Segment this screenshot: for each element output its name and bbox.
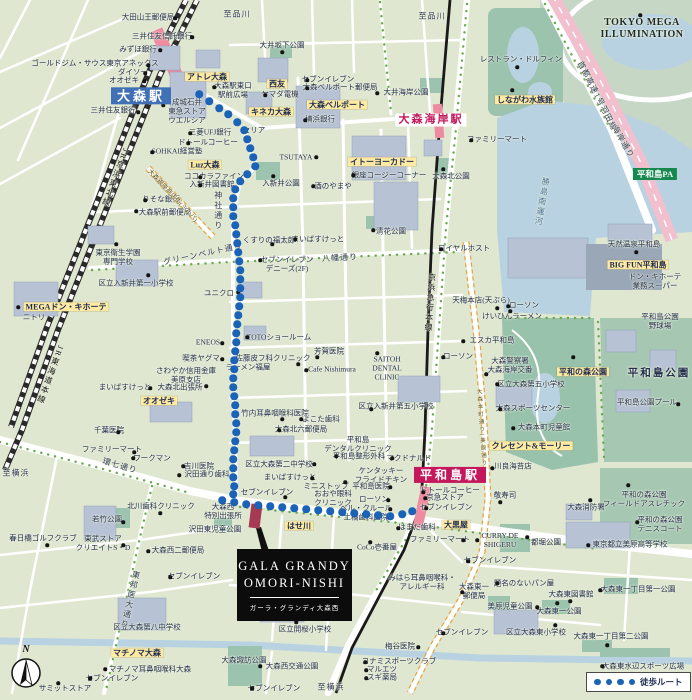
map-label: 区立大森東小学校 — [506, 629, 566, 638]
walking-route-dot — [249, 153, 257, 161]
poi-dot — [441, 631, 445, 635]
walking-route-dot — [240, 126, 248, 134]
map-label: 平和の森公園 フィールドアスレチック — [603, 491, 685, 509]
map-label: はまだ歯科 — [398, 524, 436, 533]
poi-dot — [423, 496, 427, 500]
poi-dot — [131, 456, 135, 460]
poi-dot — [351, 173, 355, 177]
map-label: 東京都立美原高等学校 — [593, 541, 668, 550]
map-label: 大森スポーツセンター — [496, 405, 571, 414]
map-label: 三井住友信託銀行 — [132, 33, 192, 42]
walking-route-dot — [236, 293, 244, 301]
poi-dot — [198, 175, 202, 179]
walking-route-dot — [229, 490, 237, 498]
map-label: 大森東水辺スポーツ広場 — [602, 663, 684, 672]
walking-route-dot — [215, 104, 223, 112]
walking-route-dot — [236, 266, 244, 274]
map-label: クレセント&モーリー — [490, 441, 573, 450]
map-label: まいばすけっと — [99, 384, 152, 393]
walking-route-dot — [229, 473, 237, 481]
poi-dot — [132, 450, 136, 454]
poi-dot — [299, 417, 303, 421]
map-label: セブンイレブン — [248, 685, 301, 694]
poi-dot — [553, 623, 557, 627]
map-label: しながわ水族館 — [495, 95, 555, 104]
map-label: 至品川 — [419, 11, 446, 20]
poi-dot — [368, 540, 372, 544]
poi-dot — [103, 667, 107, 671]
walking-route-dot — [278, 503, 286, 511]
map-label: 平和島公園 — [628, 368, 691, 380]
poi-dot — [16, 305, 20, 309]
map-label: ヤマダ電機 — [261, 91, 299, 100]
poi-dot — [271, 174, 275, 178]
walking-route-dot — [229, 383, 237, 391]
map-label: エスカ平和島 — [470, 337, 515, 346]
map-label: CURRY DE SHIGERU — [481, 532, 518, 550]
poi-dot — [495, 382, 499, 386]
poi-dot — [571, 355, 575, 359]
map-label: まいばすけっと — [292, 236, 345, 245]
walking-route-dot — [251, 162, 259, 170]
area-map: 至品川至品川大田山王郵便局三井住友信託銀行みずほ銀行ゴールドジム・サウス東京アネ… — [0, 0, 692, 700]
walking-route-dot — [230, 498, 238, 506]
map-label: 区立大森第二中学校 — [245, 461, 313, 470]
map-label: セブンイレブン — [464, 557, 517, 566]
poi-dot — [263, 93, 267, 97]
map-label: 大井海岸公園 — [384, 89, 429, 98]
map-label: 春日橋ゴルフクラブ — [9, 535, 77, 544]
walking-route-dot — [205, 97, 213, 105]
map-label: ニトリ — [23, 314, 46, 323]
map-label: 大森ベルポート郵便局 — [303, 84, 378, 93]
poi-dot — [396, 526, 400, 530]
map-label: 大森東一丁目第一公園 — [601, 586, 676, 595]
map-label: マチノマ大森 — [111, 648, 163, 657]
poi-dot — [314, 155, 318, 159]
poi-dot — [460, 590, 464, 594]
poi-dot — [511, 426, 515, 430]
poi-dot — [204, 384, 208, 388]
walking-route-dot — [229, 194, 237, 202]
property-name-en-2: OMORI-NISHI — [237, 575, 352, 592]
map-label: けいひんラーメン — [482, 313, 542, 322]
poi-dot — [334, 454, 338, 458]
map-label: レストラン・ドルフィン — [480, 56, 562, 65]
map-label: 至横浜 — [318, 682, 345, 691]
poi-dot — [143, 71, 147, 75]
walking-route-dot — [231, 410, 239, 418]
walking-route-dot — [231, 437, 239, 445]
walking-route-dot — [229, 455, 237, 463]
poi-dot — [134, 209, 138, 213]
poi-dot — [364, 676, 368, 680]
map-label: 大森消防署 — [567, 504, 605, 513]
poi-dot — [304, 368, 308, 372]
poi-dot — [258, 258, 262, 262]
map-label: 天然温泉平和島 — [608, 241, 661, 250]
walking-route-dot — [232, 338, 240, 346]
route-dot-icon — [606, 679, 613, 686]
poi-dot — [484, 372, 488, 376]
map-label: 区立開桜小学校 — [279, 626, 332, 635]
map-label: 若竹公園 — [92, 516, 122, 525]
walking-route-dot — [195, 90, 203, 98]
route-dot-icon — [617, 679, 624, 686]
poi-dot — [293, 237, 297, 241]
poi-dot — [475, 538, 479, 542]
walking-route-dot — [236, 275, 244, 283]
poi-dot — [600, 664, 604, 668]
map-label: 大井坂下公園 — [260, 42, 305, 51]
map-label: 都堀公園 — [531, 539, 561, 548]
walking-route-dot — [326, 507, 334, 515]
poi-dot — [605, 643, 609, 647]
poi-dot — [283, 495, 287, 499]
map-label: よこた歯科 — [302, 416, 340, 425]
poi-dot — [369, 407, 373, 411]
map-label: 区立入新井第一小学校 — [99, 280, 174, 289]
poi-dot — [312, 462, 316, 466]
poi-dot — [280, 50, 284, 54]
poi-dot — [220, 357, 224, 361]
walking-route-dot — [254, 501, 262, 509]
poi-dot — [315, 355, 319, 359]
map-label: 喫茶ヤグマ — [182, 355, 220, 364]
map-label: 入新井図書館 — [190, 181, 235, 190]
map-label: 天梅本店(天ぷら) — [452, 297, 510, 306]
map-label: 大黒屋 — [442, 520, 470, 529]
map-label: 成城石井 東急ストア ウエルシア — [168, 99, 206, 126]
poi-dot — [310, 476, 314, 480]
poi-dot — [498, 500, 502, 504]
map-label: ドン・キホーテ 業務スーパー — [629, 273, 682, 291]
map-label: スギ薬局 — [367, 674, 397, 683]
map-label: キネカ大森 — [249, 107, 293, 116]
poi-dot — [45, 543, 49, 547]
map-label: 川良海苔店 — [494, 463, 532, 472]
map-label: みずほ銀行 — [119, 46, 157, 55]
poi-dot — [466, 559, 470, 563]
compass-needle-icon — [6, 655, 46, 691]
walking-route-dot — [229, 212, 237, 220]
poi-dot — [142, 79, 146, 83]
poi-dot — [388, 507, 392, 511]
poi-dot — [296, 362, 300, 366]
walking-route-dot — [231, 185, 239, 193]
map-label: 大森駅東口 駅前広場 — [214, 82, 252, 100]
map-label: ENEOS — [196, 339, 220, 348]
map-label: 平和島公園プール — [617, 399, 677, 408]
map-label: 入新井公園 — [262, 180, 300, 189]
route-legend: 徒歩ルート — [586, 672, 691, 692]
map-label: TOKYO MEGA ILLUMINATION — [600, 17, 683, 41]
map-label: 東京衛生学園 専門学校 — [96, 249, 141, 267]
walking-route-dot — [243, 170, 251, 178]
walking-route-dot — [234, 311, 242, 319]
walking-route-dot — [230, 392, 238, 400]
poi-dot — [173, 16, 177, 20]
poi-dot — [424, 506, 428, 510]
map-label: 大森西 特別出張所 — [204, 503, 242, 521]
map-label: 三井住友銀行 — [91, 107, 136, 116]
poi-dot — [277, 428, 281, 432]
map-label: ローソン — [509, 302, 539, 311]
poi-dot — [469, 138, 473, 142]
poi-dot — [439, 247, 443, 251]
map-label: 銀座コージーコーナー — [352, 172, 427, 181]
walking-route-dot — [231, 347, 239, 355]
poi-dot — [116, 430, 120, 434]
walking-route-dot — [266, 502, 274, 510]
walking-route-dot — [229, 374, 237, 382]
poi-dot — [638, 13, 642, 17]
map-label: 大森北出張所 — [158, 384, 203, 393]
walking-route-dot — [232, 230, 240, 238]
walking-route-dot — [314, 506, 322, 514]
poi-dot — [121, 520, 125, 524]
map-label: 横浜銀行 — [305, 116, 335, 125]
walking-route-dot — [235, 257, 243, 265]
walking-route-dot — [236, 284, 244, 292]
omorikaigan-station-label: 大森海岸駅 — [396, 114, 467, 127]
poi-dot — [186, 141, 190, 145]
poi-dot — [270, 242, 274, 246]
walking-route-dot — [386, 512, 394, 520]
map-label: みはら耳鼻咽喉科・ アレルギー科 — [388, 574, 456, 592]
map-label: 美原児童公園 — [488, 603, 533, 612]
walking-route-dot — [232, 329, 240, 337]
map-label: 大田山王郵便局 — [122, 14, 175, 23]
map-label: 至品川 — [224, 9, 251, 18]
map-label: 平和の森公園 — [557, 367, 609, 376]
map-label: ユニクロ — [204, 290, 234, 299]
poi-dot — [490, 466, 494, 470]
walking-route-dot — [230, 446, 238, 454]
poi-dot — [158, 48, 162, 52]
poi-dot — [525, 535, 529, 539]
walking-route-dot — [229, 203, 237, 211]
walking-route-dot — [234, 248, 242, 256]
map-label: 平和島整形外科 — [333, 453, 386, 462]
walking-route-dot — [290, 504, 298, 512]
map-label: 大森西交通公園 — [266, 663, 319, 672]
poi-dot — [56, 681, 60, 685]
poi-dot — [305, 86, 309, 90]
poi-dot — [146, 63, 150, 67]
walking-route-dot — [233, 118, 241, 126]
map-label: 敬寿司 — [494, 492, 517, 501]
poi-dot — [416, 645, 420, 649]
poi-dot — [311, 184, 315, 188]
poi-dot — [371, 228, 375, 232]
poi-dot — [258, 664, 262, 668]
map-label: 大森東図書館 — [549, 591, 594, 600]
map-label: 清花公園 — [376, 228, 406, 237]
poi-dot — [598, 588, 602, 592]
walking-route-dot — [232, 419, 240, 427]
walking-route-dot — [302, 505, 310, 513]
map-label: CoCo壱番屋 — [357, 544, 397, 553]
map-label: 平和の森公園 テニスコート — [638, 516, 683, 534]
map-label: 題名のないパン屋 — [494, 580, 554, 589]
poi-dot — [506, 304, 510, 308]
walking-route-dot — [338, 508, 346, 516]
property-name-en-1: GALA GRANDY — [237, 558, 352, 575]
poi-dot — [375, 351, 379, 355]
poi-dot — [190, 35, 194, 39]
map-label: 沢田東児童公園 — [189, 526, 242, 535]
map-label: 大森ベルポート — [307, 100, 367, 109]
map-label: 平和島医院 — [352, 483, 390, 492]
route-legend-label: 徒歩ルート — [640, 676, 683, 688]
poi-dot — [143, 198, 147, 202]
map-label: Cafe Nishimura — [308, 366, 356, 375]
poi-dot — [177, 473, 181, 477]
poi-dot — [568, 599, 572, 603]
property-name-box: GALA GRANDY OMORI-NISHI ガーラ・グランディ大森西 — [237, 549, 352, 621]
poi-dot — [390, 456, 394, 460]
map-label: イトーヨーカドー — [348, 157, 416, 166]
poi-dot — [441, 355, 445, 359]
map-label: 区立大森第五小学校 — [497, 381, 565, 390]
map-label: BIG FUN平和島 — [607, 260, 668, 269]
map-label: SAITOH DENTAL CLINIC — [372, 356, 401, 383]
poi-dot — [676, 402, 680, 406]
map-label: セブンイレブン デニーズ(2F) — [261, 256, 314, 274]
omori-station-label: 大森駅 — [111, 87, 171, 104]
divider — [250, 597, 340, 598]
map-label: オオゼキ — [141, 396, 177, 405]
poi-dot — [535, 605, 539, 609]
poi-dot — [461, 538, 465, 542]
poi-dot — [146, 273, 150, 277]
poi-dot — [220, 341, 224, 345]
walking-route-dot — [350, 509, 358, 517]
map-label: 大森警察署 大森海岸交番 — [488, 357, 533, 375]
map-label: TOTOショールーム — [247, 334, 312, 343]
poi-dot — [364, 668, 368, 672]
heiwajima-station-label: 平和島駅 — [414, 467, 486, 483]
map-label: サミットストア — [39, 685, 92, 694]
map-label: MEGAドン・キホーテ — [24, 302, 109, 311]
map-label: 至横浜 — [3, 468, 30, 477]
poi-dot — [121, 543, 125, 547]
map-label: セブンイレブン — [86, 675, 139, 684]
walking-route-dot — [231, 221, 239, 229]
map-label: 沢田通り歯科 — [185, 471, 230, 480]
poi-dot — [495, 306, 499, 310]
poi-dot — [461, 339, 465, 343]
poi-dot — [586, 543, 590, 547]
walking-route-dot — [230, 482, 238, 490]
poi-dot — [421, 490, 425, 494]
map-label: オオゼキ — [109, 77, 139, 86]
route-dot-icon — [629, 679, 636, 686]
poi-dot — [508, 309, 512, 313]
map-label: 神社通り — [213, 191, 222, 231]
map-label: SOHKAI経営塾 — [152, 148, 203, 157]
map-label: セブンイレブン — [168, 573, 221, 582]
map-label: 大森東一丁目第二公園 — [574, 633, 649, 642]
poi-dot — [212, 85, 216, 89]
poi-dot — [146, 549, 150, 553]
poi-dot — [148, 386, 152, 390]
poi-dot — [88, 676, 92, 680]
poi-dot — [634, 250, 638, 254]
property-name-ja: ガーラ・グランディ大森西 — [237, 602, 352, 612]
map-label: ローソン — [443, 353, 473, 362]
poi-dot — [498, 407, 502, 411]
map-label: 三菱UFJ銀行 — [189, 129, 232, 138]
poi-dot — [280, 417, 284, 421]
walking-route-dot — [233, 239, 241, 247]
poi-dot — [303, 118, 307, 122]
map-label: 酒のやまや — [314, 183, 352, 192]
walking-route-dot — [235, 302, 243, 310]
poi-dot — [181, 464, 185, 468]
map-label: 八幡通り — [322, 252, 358, 263]
poi-dot — [555, 601, 559, 605]
poi-dot — [136, 110, 140, 114]
poi-dot — [635, 520, 639, 524]
poi-dot — [588, 498, 592, 502]
map-label: 京急ストア — [426, 494, 464, 503]
walking-route-dot — [398, 510, 406, 518]
poi-dot — [441, 167, 445, 171]
map-label: 平和島公園 野球場 — [641, 313, 679, 331]
map-label: 大森本町児童館 — [518, 424, 571, 433]
map-label: アトレ大森 — [185, 72, 229, 81]
poi-dot — [626, 483, 630, 487]
map-label: 大森北六郵便局 — [275, 426, 328, 435]
walking-route-dot — [374, 511, 382, 519]
poi-dot — [515, 65, 519, 69]
map-label: ワークマン — [133, 455, 171, 464]
poi-dot — [168, 575, 172, 579]
walking-route-dot — [242, 500, 250, 508]
walking-route-dot — [230, 365, 238, 373]
poi-dot — [495, 581, 499, 585]
poi-dot — [388, 485, 392, 489]
walking-route-dot — [362, 510, 370, 518]
poi-dot — [245, 335, 249, 339]
walking-route-dot — [230, 356, 238, 364]
map-label: 西友 — [267, 79, 287, 88]
map-label: はせ川 — [285, 521, 313, 530]
map-label: くすりの福太郎 — [243, 237, 296, 246]
compass-north-label: N — [6, 644, 46, 655]
map-label: 平和島PA — [633, 168, 677, 180]
poi-dot — [305, 78, 309, 82]
poi-dot — [510, 88, 514, 92]
walking-route-dot — [232, 428, 240, 436]
poi-dot — [343, 480, 347, 484]
walking-route-dot — [236, 177, 244, 185]
walking-route-dot — [229, 464, 237, 472]
walking-route-dot — [246, 144, 254, 152]
map-label: 大森北公園 — [432, 173, 470, 182]
map-label: 大森西二郵便局 — [152, 547, 205, 556]
poi-dot — [188, 131, 192, 135]
map-label: TSUTAYA — [280, 154, 313, 163]
compass: N — [6, 644, 46, 696]
poi-dot — [114, 242, 118, 246]
walking-route-dot — [233, 320, 241, 328]
map-label: 大森東一公園 — [537, 608, 582, 617]
walking-route-dot — [218, 496, 226, 504]
poi-dot — [363, 660, 367, 664]
